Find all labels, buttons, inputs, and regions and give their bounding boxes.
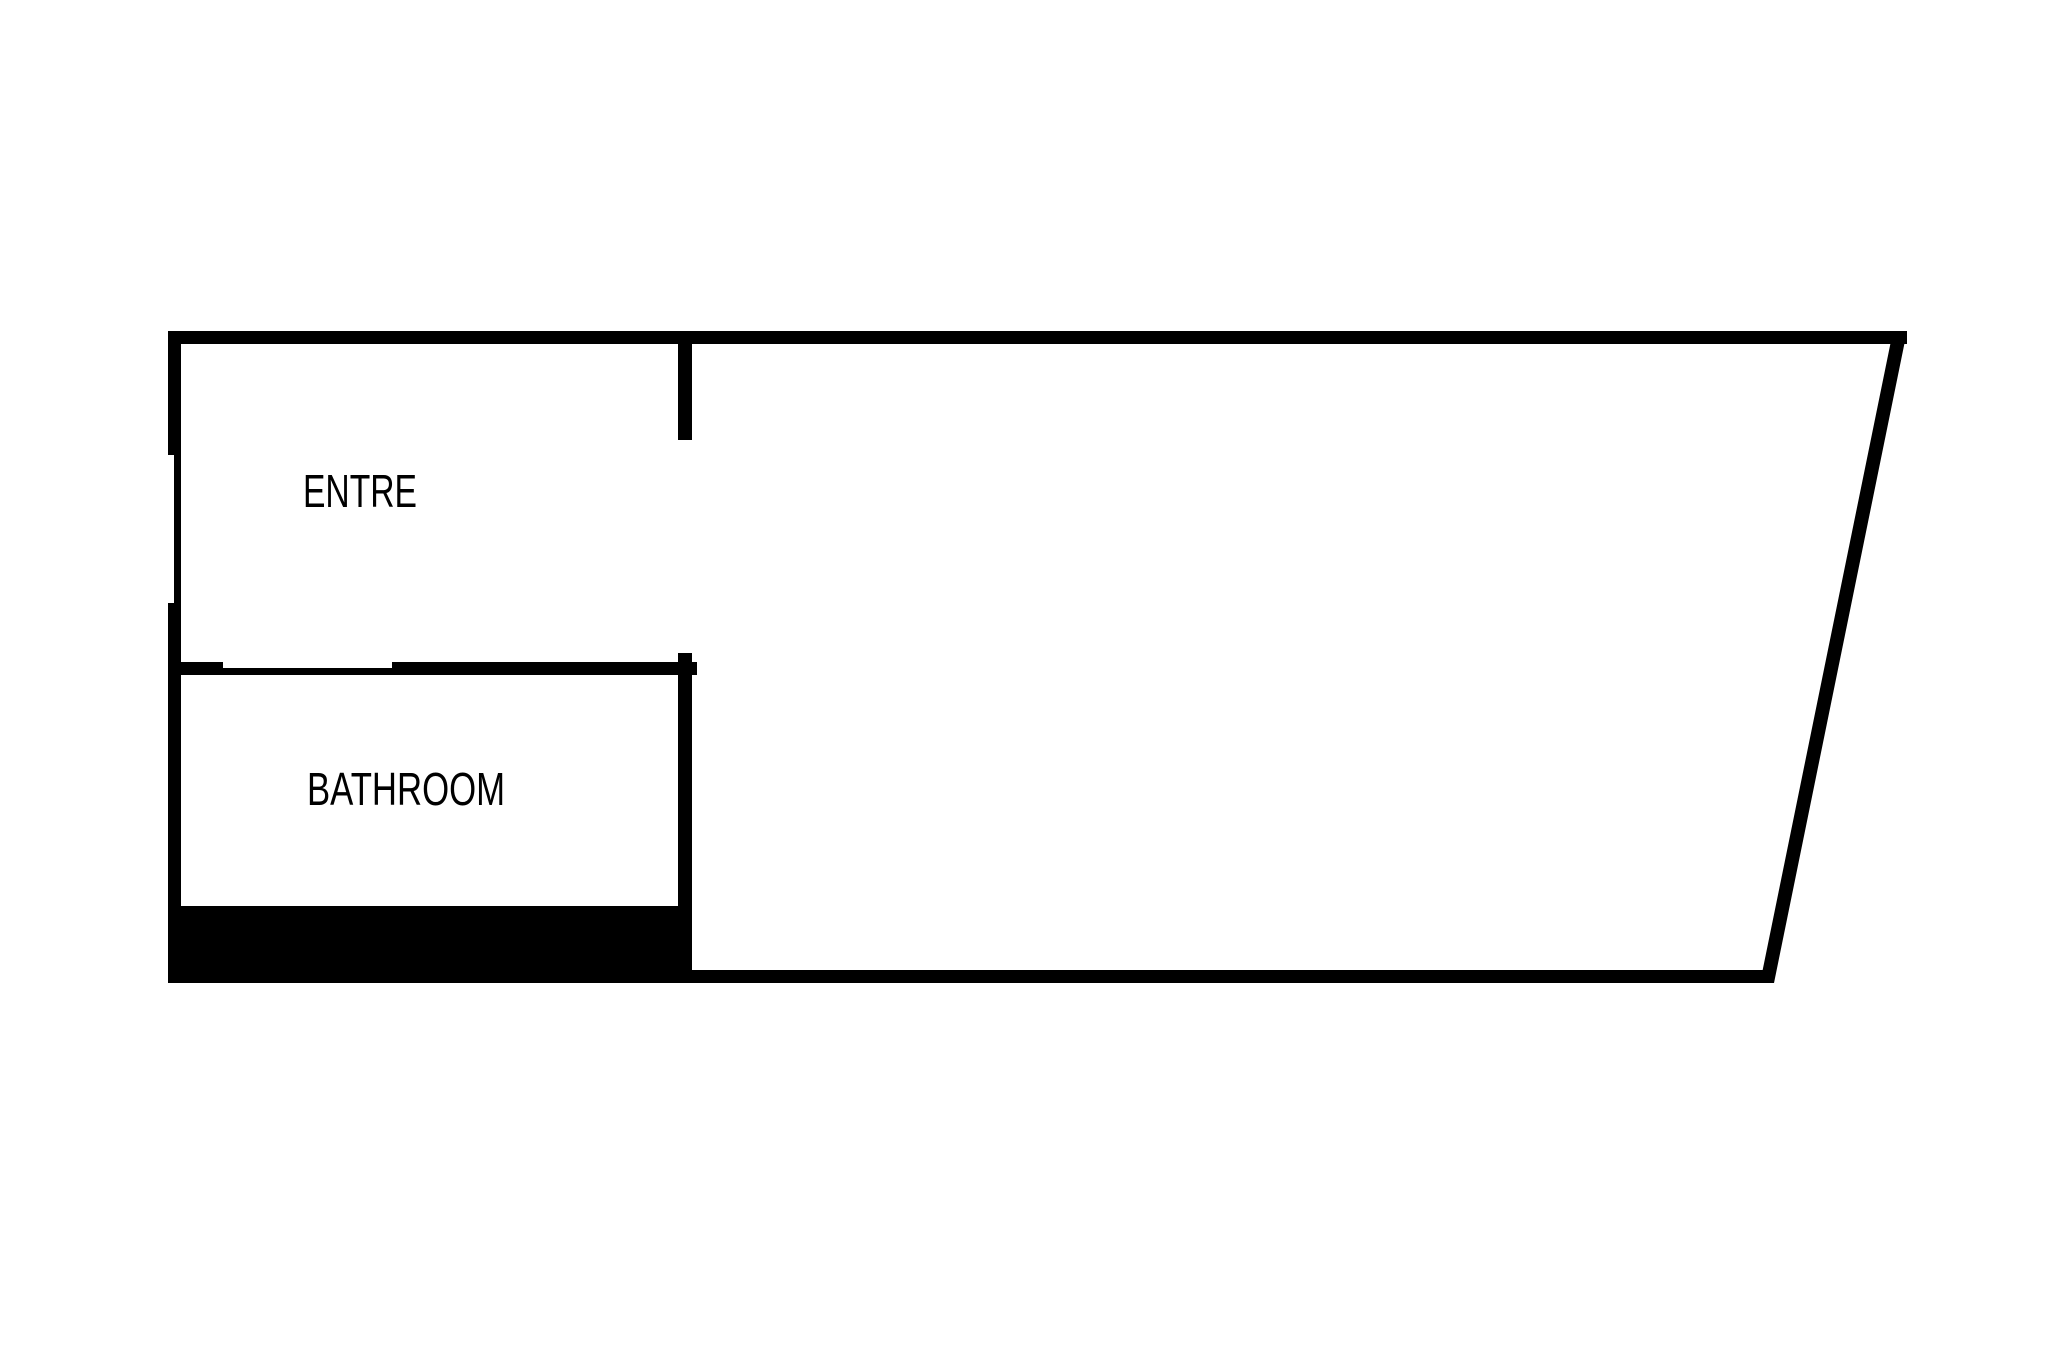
filled-block-bottom-left (168, 906, 692, 983)
wall-bathroom-right (678, 653, 692, 906)
floorplan-drawing: ENTRE BATHROOM (0, 0, 2048, 1365)
floorplan-background (0, 0, 2048, 1365)
wall-bathroom-top-left (168, 662, 223, 675)
wall-top (168, 331, 1907, 344)
wall-bottom (692, 970, 1768, 983)
wall-bathroom-top-right (392, 662, 697, 675)
floorplan-canvas: ENTRE BATHROOM (0, 0, 2048, 1365)
wall-divider-stub-top (678, 331, 692, 440)
bathroom-room-label: BATHROOM (307, 763, 505, 815)
entre-room-label: ENTRE (303, 465, 417, 517)
wall-left-upper (168, 331, 181, 455)
wall-bathroom-door-threshold (223, 668, 392, 675)
wall-left-window-segment (174, 455, 181, 603)
